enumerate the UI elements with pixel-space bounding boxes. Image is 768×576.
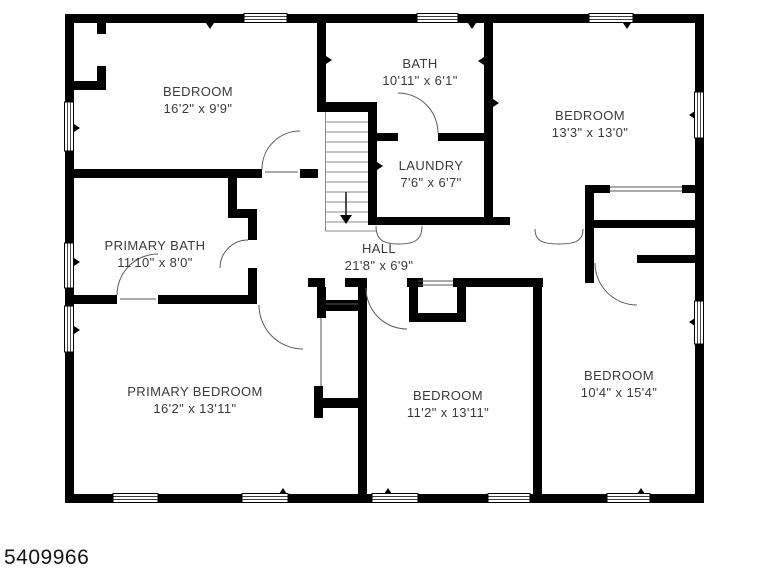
window	[113, 494, 158, 503]
wall-segment	[317, 23, 326, 104]
room-dimensions: 13'3" x 13'0"	[552, 124, 629, 141]
tick-mark	[279, 488, 287, 494]
wall-segment	[300, 169, 318, 178]
wall-segment	[70, 81, 106, 90]
tick-mark	[493, 99, 499, 107]
tick-mark	[689, 111, 695, 119]
tick-mark	[478, 57, 484, 65]
window	[695, 92, 704, 138]
door-arc-primary-bedroom	[259, 305, 303, 349]
room-name: PRIMARY BATH	[105, 237, 206, 254]
room-name: PRIMARY BEDROOM	[127, 383, 263, 400]
door-arc-bedroom-top-right	[535, 229, 583, 244]
wall-segment	[368, 112, 377, 225]
tick-mark	[74, 258, 80, 266]
room-name: BATH	[382, 55, 458, 72]
tick-mark	[377, 162, 383, 170]
window	[242, 494, 288, 503]
listing-id: 5409966	[4, 546, 89, 570]
tick-mark	[74, 326, 80, 334]
window	[488, 494, 530, 503]
wall-segment	[462, 278, 543, 287]
wall-segment	[585, 220, 704, 228]
room-name: BEDROOM	[552, 107, 629, 124]
floor-plan-page: BEDROOM 16'2" x 9'9" BATH 10'11" x 6'1" …	[0, 0, 768, 576]
room-name: BEDROOM	[581, 367, 658, 384]
window	[65, 306, 74, 352]
room-label-primary-bath: PRIMARY BATH 11'10" x 8'0"	[105, 237, 206, 271]
room-name: BEDROOM	[163, 83, 233, 100]
wall-segment	[533, 278, 542, 494]
room-dimensions: 16'2" x 13'11"	[127, 400, 263, 417]
tick-mark	[689, 318, 695, 326]
wall-segment	[158, 295, 257, 304]
room-label-laundry: LAUNDRY 7'6" x 6'7"	[399, 157, 464, 191]
room-label-bedroom-top-left: BEDROOM 16'2" x 9'9"	[163, 83, 233, 117]
room-dimensions: 11'2" x 13'11"	[407, 404, 489, 421]
door-arc-primary-bath-hall	[220, 240, 248, 268]
window	[589, 14, 633, 23]
window	[417, 14, 458, 23]
wall-segment	[453, 278, 462, 287]
room-label-primary-bedroom: PRIMARY BEDROOM 16'2" x 13'11"	[127, 383, 263, 417]
room-label-bath: BATH 10'11" x 6'1"	[382, 55, 458, 89]
wall-segment	[368, 217, 510, 225]
door-arc-bath	[398, 93, 438, 133]
room-dimensions: 10'4" x 15'4"	[581, 384, 658, 401]
room-dimensions: 10'11" x 6'1"	[382, 72, 458, 89]
room-label-bedroom-bottom-right: BEDROOM 10'4" x 15'4"	[581, 367, 658, 401]
room-label-bedroom-bottom-mid: BEDROOM 11'2" x 13'11"	[407, 387, 489, 421]
wall-segment	[325, 300, 358, 311]
wall-segment	[438, 133, 485, 141]
room-dimensions: 21'8" x 6'9"	[345, 257, 414, 274]
window	[372, 494, 418, 503]
wall-segment	[65, 169, 262, 178]
tick-mark	[637, 488, 645, 494]
wall-segment	[97, 23, 106, 34]
window	[695, 301, 704, 344]
stairs-down-arrow	[340, 192, 352, 224]
tick-mark	[206, 23, 214, 29]
tick-mark	[326, 56, 332, 64]
room-name: HALL	[345, 240, 414, 257]
wall-segment	[248, 218, 257, 240]
tick-mark	[468, 23, 476, 29]
door-arc-bedroom-bottom-mid	[366, 288, 407, 329]
wall-segment	[228, 209, 257, 218]
wall-segment	[585, 185, 594, 283]
wall-segment	[317, 102, 377, 112]
room-name: LAUNDRY	[399, 157, 464, 174]
wall-segment	[682, 185, 695, 193]
wall-segment	[97, 66, 106, 81]
room-name: BEDROOM	[407, 387, 489, 404]
wall-segment	[308, 278, 325, 287]
wall-segment	[65, 295, 117, 304]
window	[65, 243, 74, 288]
window	[65, 102, 74, 151]
wall-segment	[637, 255, 704, 263]
wall-segment	[407, 278, 423, 287]
tick-mark	[384, 488, 392, 494]
window	[244, 14, 287, 23]
wall-segment	[317, 287, 326, 318]
door-arc-bedroom-top-left	[262, 131, 300, 169]
tick-mark	[623, 23, 631, 29]
room-label-bedroom-top-right: BEDROOM 13'3" x 13'0"	[552, 107, 629, 141]
window	[607, 494, 650, 503]
room-dimensions: 11'10" x 8'0"	[105, 254, 206, 271]
room-dimensions: 16'2" x 9'9"	[163, 100, 233, 117]
wall-segment	[457, 287, 466, 322]
wall-segment	[358, 278, 367, 494]
wall-segment	[377, 133, 398, 141]
room-dimensions: 7'6" x 6'7"	[399, 174, 464, 191]
wall-segment	[484, 14, 493, 225]
wall-segment	[318, 398, 358, 408]
door-arc-bedroom-bottom-right	[595, 263, 637, 305]
room-label-hall: HALL 21'8" x 6'9"	[345, 240, 414, 274]
tick-mark	[74, 124, 80, 132]
